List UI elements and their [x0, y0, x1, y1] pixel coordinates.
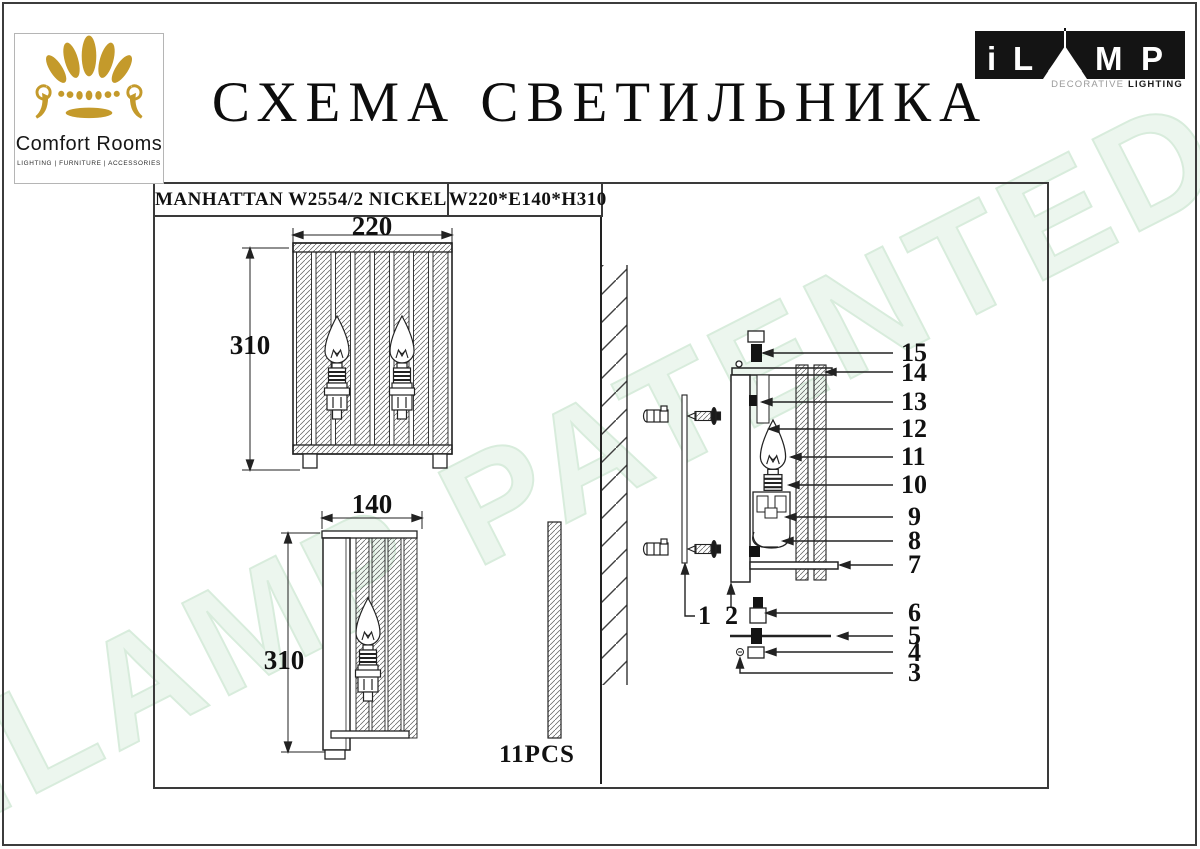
side-height-label: 310 [256, 645, 312, 676]
callout-10: 10 [901, 475, 927, 495]
brand-name: Comfort Rooms [15, 133, 163, 156]
brand-tagline: LIGHTING | FURNITURE | ACCESSORIES [15, 160, 163, 167]
model-name: MANHATTAN W2554/2 NICKEL [155, 189, 447, 211]
callout-13: 13 [901, 392, 927, 412]
ilamp-letter-m: M [1095, 40, 1123, 77]
callout-9: 9 [908, 507, 921, 527]
callout-11: 11 [901, 447, 926, 467]
ilamp-subtitle-bold: LIGHTING [1128, 79, 1183, 90]
front-width-label: 220 [332, 211, 412, 242]
callout-12: 12 [901, 419, 927, 439]
callout-6: 6 [908, 603, 921, 623]
ilamp-letter-l: L [1013, 40, 1033, 77]
front-height-label: 310 [222, 330, 278, 361]
callout-3: 3 [908, 663, 921, 683]
schematic-page: iLAMP PATENTED [0, 0, 1200, 849]
ilamp-subtitle-light: DECORATIVE [1051, 79, 1128, 90]
crystal-pcs-label: 11PCS [482, 741, 592, 769]
model-size: W220*E140*H310 [449, 189, 607, 211]
callout-8: 8 [908, 531, 921, 551]
side-width-label: 140 [332, 489, 412, 520]
ilamp-letter-i: i [987, 40, 996, 77]
callout-7: 7 [908, 555, 921, 575]
callout-2: 2 [725, 606, 738, 626]
callout-14: 14 [901, 363, 927, 383]
ilamp-logo: i L M P [975, 28, 1185, 85]
callout-1: 1 [698, 606, 711, 626]
ilamp-subtitle: DECORATIVE LIGHTING [975, 79, 1183, 90]
ilamp-letter-p: P [1141, 40, 1163, 77]
